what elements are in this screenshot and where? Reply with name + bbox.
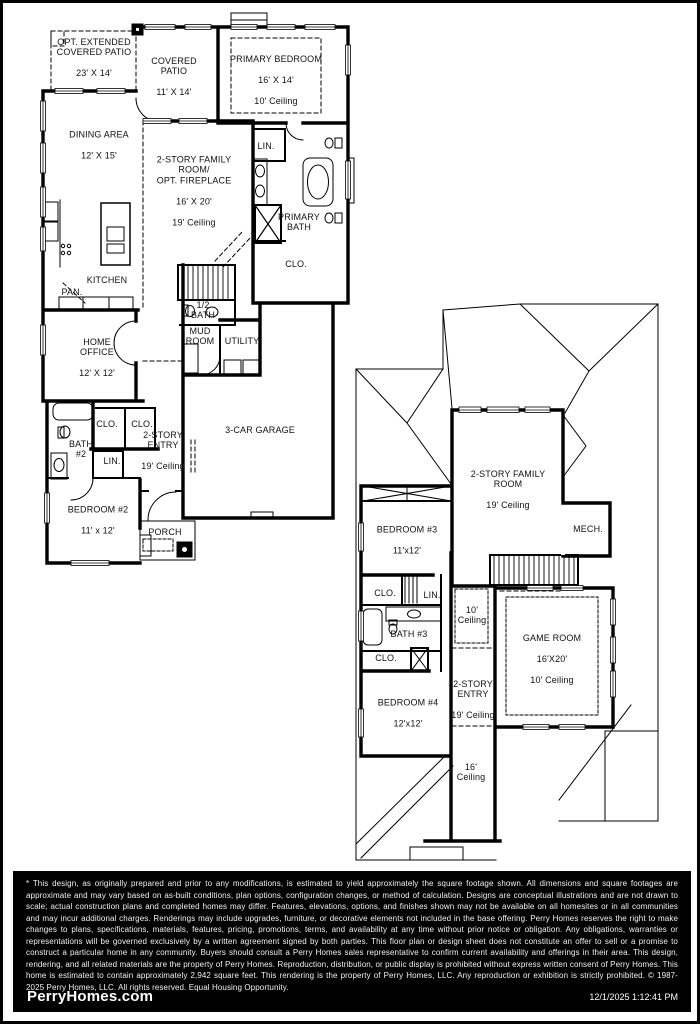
room-name: LIN.: [103, 456, 120, 467]
disclaimer-text: * This design, as originally prepared an…: [26, 878, 678, 993]
room-name: GAME ROOM: [523, 632, 581, 643]
room-label-game-room: GAME ROOM 16'X20' 10' Ceiling: [523, 622, 581, 696]
room-label-garage: 3-CAR GARAGE: [225, 414, 295, 446]
room-name: 2-STORY ENTRY: [141, 430, 184, 451]
room-label-closet-f2a: CLO.: [374, 577, 396, 609]
timestamp: 12/1/2025 1:12:41 PM: [589, 992, 678, 1002]
room-name: PAN.: [62, 287, 83, 298]
room-label-primary-bath: PRIMARY BATH: [278, 201, 320, 243]
room-label-bedroom-4: BEDROOM #4 12'x12': [378, 686, 439, 739]
room-label-10ft-ceiling: 10' Ceiling: [458, 594, 487, 636]
room-name: 2-STORY FAMILY ROOM/ OPT. FIREPLACE: [157, 154, 232, 186]
room-dims: 11'x12': [377, 545, 438, 556]
room-dims: 16'X20': [523, 654, 581, 665]
room-dims: 12' X 15': [69, 150, 129, 161]
room-name: LIN.: [257, 141, 274, 152]
room-label-primary-bedroom: PRIMARY BEDROOM 16' X 14' 10' Ceiling: [230, 43, 322, 117]
room-dims: 23' X 14': [57, 69, 132, 80]
room-name: 16' Ceiling: [457, 761, 486, 782]
room-name: BEDROOM #3: [377, 524, 438, 535]
footer-panel: * This design, as originally prepared an…: [13, 871, 691, 1012]
room-label-entry-f2: 2-STORY ENTRY 19' Ceiling: [451, 668, 494, 732]
room-dims: 16' X 14': [230, 75, 322, 86]
room-name: LIN.: [423, 590, 440, 601]
room-dims: 11' x 12': [68, 525, 129, 536]
room-label-primary-closet: CLO.: [285, 248, 307, 280]
brand-logo: PerryHomes.com: [27, 988, 153, 1005]
room-ceiling: 19' Ceiling: [471, 501, 545, 512]
room-ceiling: 19' Ceiling: [157, 218, 232, 229]
floor2-stair-treads: [494, 556, 574, 584]
room-name: 2-STORY FAMILY ROOM: [471, 469, 545, 490]
room-label-closet-f2b: CLO.: [375, 642, 397, 674]
room-label-home-office: HOME OFFICE 12' X 12': [79, 326, 115, 390]
room-label-entry-f1: 2-STORY ENTRY 19' Ceiling: [141, 419, 184, 483]
room-label-mech: MECH.: [573, 513, 603, 545]
room-ceiling: 19' Ceiling: [451, 711, 494, 722]
room-name: PORCH: [148, 527, 181, 538]
room-label-linen-2: LIN.: [103, 445, 120, 477]
room-label-covered-patio: COVERED PATIO 11' X 14': [151, 45, 197, 109]
room-name: 3-CAR GARAGE: [225, 425, 295, 436]
room-label-utility: UTILITY: [225, 325, 260, 357]
room-label-family-room-f1: 2-STORY FAMILY ROOM/ OPT. FIREPLACE 16' …: [157, 143, 232, 238]
room-name: 10' Ceiling: [458, 604, 487, 625]
room-dims: 16' X 20': [157, 196, 232, 207]
room-name: COVERED PATIO: [151, 56, 197, 77]
room-name: HOME OFFICE: [79, 337, 115, 358]
room-dims: 11' X 14': [151, 88, 197, 99]
room-name: CLO.: [285, 259, 307, 270]
floorplan-sheet: OPT. EXTENDED COVERED PATIO 23' X 14' CO…: [0, 0, 700, 1024]
room-name: BEDROOM #4: [378, 697, 439, 708]
room-name: 2-STORY ENTRY: [451, 679, 494, 700]
room-dims: 12'x12': [378, 718, 439, 729]
room-label-closet-a: CLO.: [96, 408, 118, 440]
room-name: DINING AREA: [69, 129, 129, 140]
room-name: PRIMARY BEDROOM: [230, 53, 322, 64]
room-name: PRIMARY BATH: [278, 211, 320, 232]
room-name: BATH #2: [69, 438, 93, 459]
room-name: BATH #3: [391, 629, 428, 640]
room-name: MECH.: [573, 524, 603, 535]
room-name: BEDROOM #2: [68, 504, 129, 515]
room-name: CLO.: [375, 653, 397, 664]
room-ceiling: 10' Ceiling: [230, 96, 322, 107]
room-name: OPT. EXTENDED COVERED PATIO: [57, 37, 132, 58]
room-ceiling: 19' Ceiling: [141, 462, 184, 473]
room-label-opt-extended-covered-patio: OPT. EXTENDED COVERED PATIO 23' X 14': [57, 26, 132, 90]
room-name: MUD ROOM: [186, 325, 215, 346]
room-label-bedroom-2: BEDROOM #2 11' x 12': [68, 493, 129, 546]
room-label-linen-f1: LIN.: [257, 130, 274, 162]
room-label-dining-area: DINING AREA 12' X 15': [69, 118, 129, 171]
room-label-bedroom-3: BEDROOM #3 11'x12': [377, 513, 438, 566]
room-ceiling: 10' Ceiling: [523, 675, 581, 686]
room-label-kitchen: KITCHEN: [87, 264, 128, 296]
room-label-mud-room: MUD ROOM: [186, 315, 215, 357]
room-name: CLO.: [96, 419, 118, 430]
room-name: UTILITY: [225, 336, 260, 347]
room-label-bath-2: BATH #2: [69, 428, 93, 470]
room-label-16ft-ceiling: 16' Ceiling: [457, 751, 486, 793]
room-label-linen-f2: LIN.: [423, 579, 440, 611]
room-name: CLO.: [374, 588, 396, 599]
room-dims: 12' X 12': [79, 369, 115, 380]
room-label-family-room-f2: 2-STORY FAMILY ROOM 19' Ceiling: [471, 458, 545, 522]
room-label-porch: PORCH: [148, 516, 181, 548]
room-label-pantry: PAN.: [62, 276, 83, 308]
room-name: KITCHEN: [87, 275, 128, 286]
